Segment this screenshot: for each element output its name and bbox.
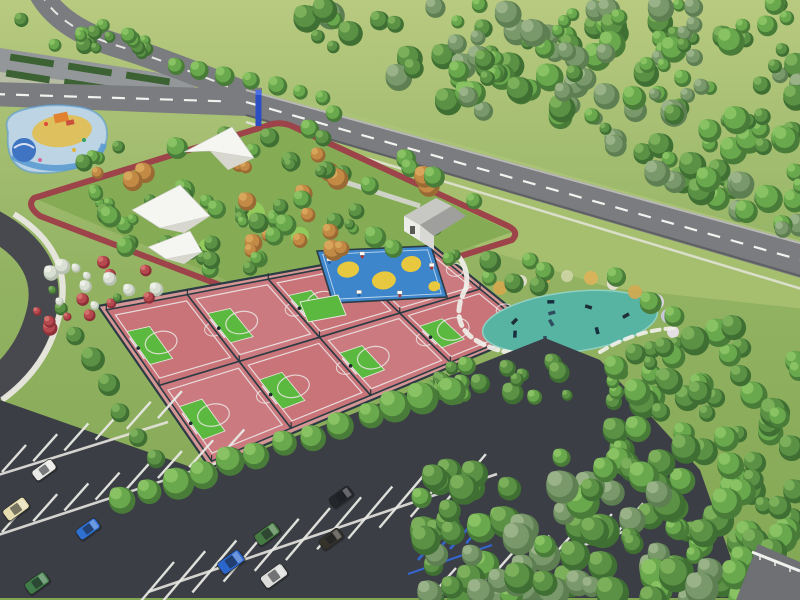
tree-highlight bbox=[238, 217, 243, 222]
tree-highlight bbox=[266, 228, 274, 236]
tree-highlight bbox=[724, 107, 736, 119]
tree-highlight bbox=[144, 292, 149, 297]
tree-highlight bbox=[665, 307, 674, 316]
park-sign-pylon bbox=[256, 90, 262, 126]
tree-highlight bbox=[276, 215, 285, 224]
tree-highlight bbox=[655, 338, 664, 347]
tree-highlight bbox=[405, 59, 414, 68]
tree-highlight bbox=[80, 280, 86, 286]
tree-highlight bbox=[658, 369, 670, 381]
tree-highlight bbox=[335, 241, 342, 248]
tree-highlight bbox=[718, 453, 730, 465]
tree-highlight bbox=[83, 272, 87, 276]
sign-pylon-body bbox=[256, 90, 262, 126]
tree-highlight bbox=[597, 577, 612, 592]
tree-highlight bbox=[385, 240, 393, 248]
tree-highlight bbox=[98, 256, 104, 262]
tree-highlight bbox=[443, 252, 449, 258]
tree-highlight bbox=[412, 526, 425, 539]
tree-highlight bbox=[387, 65, 399, 77]
tree-highlight bbox=[521, 20, 533, 32]
tree-highlight bbox=[110, 487, 122, 499]
tree-highlight bbox=[442, 577, 452, 587]
tree-highlight bbox=[123, 284, 129, 290]
tree-highlight bbox=[784, 190, 794, 200]
tree-highlight bbox=[605, 356, 616, 367]
tree-highlight bbox=[674, 423, 684, 433]
kids-backboard bbox=[429, 263, 434, 267]
tree-highlight bbox=[480, 251, 490, 261]
kids-hoop-post bbox=[328, 261, 331, 264]
basketball-hoop bbox=[429, 335, 433, 339]
tree-highlight bbox=[687, 547, 695, 555]
basketball-hoop bbox=[217, 326, 221, 330]
tree-highlight bbox=[105, 32, 110, 37]
kids-hoop-post bbox=[398, 294, 401, 297]
tree-highlight bbox=[261, 128, 270, 137]
tree-highlight bbox=[758, 16, 767, 25]
tree-highlight bbox=[99, 374, 109, 384]
tree-highlight bbox=[652, 51, 659, 58]
play-equipment-dot bbox=[82, 138, 86, 142]
tree-highlight bbox=[316, 130, 323, 137]
tree-highlight bbox=[553, 449, 561, 457]
tree-highlight bbox=[111, 404, 119, 412]
tree-highlight bbox=[77, 293, 83, 299]
tree-highlight bbox=[167, 138, 177, 148]
tree-highlight bbox=[604, 418, 616, 430]
tree-highlight bbox=[323, 224, 330, 231]
tree-highlight bbox=[558, 43, 566, 51]
tree-highlight bbox=[349, 204, 356, 211]
tree-highlight bbox=[582, 518, 595, 531]
tree-highlight bbox=[600, 123, 605, 128]
tree-highlight bbox=[101, 207, 110, 216]
tree-highlight bbox=[715, 427, 726, 438]
tree-highlight bbox=[784, 480, 795, 491]
tree-highlight bbox=[713, 489, 727, 503]
tree-highlight bbox=[285, 159, 291, 165]
tree-highlight bbox=[301, 426, 313, 438]
tree-highlight bbox=[122, 28, 129, 35]
tree-highlight bbox=[98, 19, 104, 25]
tree-highlight bbox=[662, 152, 669, 159]
tree-highlight bbox=[582, 577, 591, 586]
tree-highlight bbox=[423, 465, 435, 477]
tree-highlight bbox=[787, 164, 795, 172]
tree-highlight bbox=[113, 294, 117, 298]
tree-highlight bbox=[554, 503, 564, 513]
tree-highlight bbox=[302, 208, 308, 214]
tree-highlight bbox=[608, 268, 617, 277]
tree-highlight bbox=[205, 236, 212, 243]
tree-highlight bbox=[88, 26, 94, 32]
basketball-hoop bbox=[136, 346, 140, 350]
tree-highlight bbox=[662, 37, 674, 49]
tree-highlight bbox=[458, 357, 466, 365]
tree-highlight bbox=[243, 72, 251, 80]
tree-highlight bbox=[245, 234, 253, 242]
basketball-hoop bbox=[189, 421, 193, 425]
tree-highlight bbox=[128, 214, 133, 219]
tree-highlight bbox=[56, 298, 60, 302]
tree-highlight bbox=[608, 448, 620, 460]
tree-highlight bbox=[425, 167, 434, 176]
tree-highlight bbox=[500, 360, 508, 368]
park-aerial-rendering bbox=[0, 0, 800, 600]
tree-highlight bbox=[743, 529, 755, 541]
flowering-bush bbox=[628, 285, 642, 299]
tree-highlight bbox=[736, 19, 743, 26]
tree-highlight bbox=[790, 362, 799, 371]
tree-highlight bbox=[448, 35, 457, 44]
tree-highlight bbox=[15, 13, 21, 19]
splash-dome-pool bbox=[12, 138, 36, 162]
tree-highlight bbox=[612, 10, 619, 17]
tree-highlight bbox=[535, 536, 545, 546]
tree-highlight bbox=[641, 559, 656, 574]
tree-highlight bbox=[82, 348, 93, 359]
tree-highlight bbox=[686, 573, 701, 588]
tree-highlight bbox=[718, 29, 730, 41]
tree-highlight bbox=[678, 26, 685, 33]
tree-highlight bbox=[468, 514, 481, 527]
tree-highlight bbox=[786, 351, 796, 361]
tree-highlight bbox=[450, 475, 463, 488]
tree-highlight bbox=[769, 496, 779, 506]
tree-highlight bbox=[381, 391, 395, 405]
tree-highlight bbox=[269, 77, 278, 86]
tree-highlight bbox=[418, 581, 429, 592]
tree-highlight bbox=[439, 378, 451, 390]
tree-highlight bbox=[769, 60, 775, 66]
tree-highlight bbox=[239, 193, 247, 201]
tree-highlight bbox=[90, 187, 96, 193]
tree-highlight bbox=[784, 85, 796, 97]
tree-highlight bbox=[644, 342, 652, 350]
tree-highlight bbox=[328, 41, 334, 47]
tree-highlight bbox=[600, 31, 612, 43]
tree-highlight bbox=[776, 44, 782, 50]
tree-highlight bbox=[756, 185, 769, 198]
tree-highlight bbox=[92, 167, 97, 172]
tree-highlight bbox=[756, 138, 764, 146]
tree-highlight bbox=[328, 413, 340, 425]
tree-highlight bbox=[731, 365, 740, 374]
exercise-equipment bbox=[513, 331, 517, 338]
tree-highlight bbox=[626, 344, 635, 353]
tree-highlight bbox=[312, 30, 318, 36]
tree-highlight bbox=[294, 6, 306, 18]
flowering-bush bbox=[561, 270, 573, 282]
tree-highlight bbox=[397, 150, 406, 159]
tree-highlight bbox=[606, 135, 616, 145]
tree-highlight bbox=[274, 199, 281, 206]
tree-highlight bbox=[589, 552, 602, 565]
tree-highlight bbox=[371, 11, 380, 20]
tree-highlight bbox=[140, 265, 145, 270]
tree-highlight bbox=[471, 31, 478, 38]
tree-highlight bbox=[402, 159, 410, 167]
tree-highlight bbox=[135, 163, 144, 172]
tree-highlight bbox=[652, 403, 660, 411]
tree-highlight bbox=[775, 127, 787, 139]
tree-highlight bbox=[626, 416, 638, 428]
tree-highlight bbox=[641, 292, 651, 302]
tree-highlight bbox=[140, 36, 145, 41]
tree-highlight bbox=[770, 408, 779, 417]
tree-highlight bbox=[55, 259, 62, 266]
tree-highlight bbox=[49, 286, 53, 290]
kids-hoop-post bbox=[430, 267, 433, 270]
basketball-hoop bbox=[349, 364, 353, 368]
tree-highlight bbox=[436, 89, 448, 101]
tree-highlight bbox=[148, 450, 156, 458]
tree-highlight bbox=[104, 272, 110, 278]
flowering-bush bbox=[584, 271, 598, 285]
tree-highlight bbox=[293, 234, 300, 241]
tree-highlight bbox=[523, 253, 530, 260]
tree-highlight bbox=[508, 77, 520, 89]
tree-highlight bbox=[756, 497, 764, 505]
tree-highlight bbox=[785, 53, 797, 65]
play-equipment-dot bbox=[38, 158, 42, 162]
tree-highlight bbox=[398, 46, 410, 58]
sign-pylon-cap bbox=[256, 90, 262, 95]
tree-highlight bbox=[208, 201, 216, 209]
tree-highlight bbox=[698, 558, 709, 569]
tree-highlight bbox=[481, 71, 488, 78]
tree-highlight bbox=[630, 462, 644, 476]
tree-highlight bbox=[150, 283, 156, 289]
tree-highlight bbox=[327, 106, 334, 113]
tree-highlight bbox=[113, 141, 119, 147]
kids-backboard bbox=[360, 252, 365, 256]
tree-highlight bbox=[731, 547, 743, 559]
tree-highlight bbox=[273, 431, 284, 442]
tree-highlight bbox=[585, 108, 592, 115]
tree-highlight bbox=[623, 87, 634, 98]
tree-highlight bbox=[164, 468, 178, 482]
tree-highlight bbox=[415, 166, 425, 176]
tree-highlight bbox=[475, 20, 483, 28]
tree-highlight bbox=[91, 301, 95, 305]
tree-highlight bbox=[614, 441, 622, 449]
tree-highlight bbox=[471, 374, 480, 383]
tree-highlight bbox=[76, 155, 84, 163]
tree-highlight bbox=[84, 310, 89, 315]
tree-highlight bbox=[168, 58, 176, 66]
tree-highlight bbox=[388, 16, 396, 24]
tree-highlight bbox=[722, 316, 733, 327]
tree-highlight bbox=[76, 30, 81, 35]
tree-highlight bbox=[625, 379, 637, 391]
tree-highlight bbox=[476, 50, 485, 59]
tree-highlight bbox=[360, 403, 371, 414]
tree-highlight bbox=[64, 313, 68, 317]
tree-highlight bbox=[365, 227, 375, 237]
tree-highlight bbox=[117, 238, 126, 247]
tree-highlight bbox=[301, 120, 309, 128]
tree-highlight bbox=[681, 88, 688, 95]
tree-highlight bbox=[769, 524, 782, 537]
tree-highlight bbox=[675, 70, 683, 78]
tree-highlight bbox=[251, 252, 257, 258]
tree-highlight bbox=[649, 89, 654, 94]
tree-highlight bbox=[620, 508, 632, 520]
tree-highlight bbox=[689, 381, 700, 392]
tree-highlight bbox=[647, 481, 659, 493]
tree-highlight bbox=[492, 507, 506, 521]
tree-highlight bbox=[545, 354, 553, 362]
tree-highlight bbox=[316, 91, 323, 98]
tree-highlight bbox=[361, 177, 369, 185]
tree-highlight bbox=[311, 148, 318, 155]
tree-highlight bbox=[555, 83, 563, 91]
tree-highlight bbox=[33, 307, 37, 311]
tree-highlight bbox=[499, 477, 510, 488]
scene-svg bbox=[0, 0, 800, 600]
tree-highlight bbox=[649, 134, 660, 145]
exercise-equipment bbox=[547, 300, 554, 304]
tree-highlight bbox=[446, 362, 452, 368]
tree-highlight bbox=[467, 194, 474, 201]
tree-highlight bbox=[503, 383, 513, 393]
tree-highlight bbox=[505, 563, 519, 577]
tree-highlight bbox=[200, 195, 206, 201]
tree-highlight bbox=[144, 194, 149, 199]
tree-highlight bbox=[44, 266, 51, 273]
tree-highlight bbox=[753, 77, 761, 85]
tree-highlight bbox=[236, 212, 242, 218]
tree-highlight bbox=[567, 65, 575, 73]
tree-highlight bbox=[697, 168, 708, 179]
tree-highlight bbox=[496, 1, 508, 13]
tree-highlight bbox=[130, 429, 138, 437]
tree-highlight bbox=[553, 25, 559, 31]
tree-highlight bbox=[442, 522, 453, 533]
tree-highlight bbox=[489, 569, 500, 580]
tree-highlight bbox=[744, 470, 753, 479]
tree-highlight bbox=[687, 17, 694, 24]
tree-highlight bbox=[245, 244, 251, 250]
tree-highlight bbox=[745, 452, 755, 462]
tree-highlight bbox=[505, 274, 514, 283]
tree-highlight bbox=[463, 545, 472, 554]
tree-highlight bbox=[72, 264, 76, 268]
tree-highlight bbox=[408, 383, 422, 397]
building-door bbox=[410, 226, 415, 234]
tree-highlight bbox=[91, 43, 96, 48]
tree-highlight bbox=[449, 61, 458, 70]
tree-highlight bbox=[49, 39, 55, 45]
tree-highlight bbox=[699, 120, 709, 130]
tree-highlight bbox=[268, 213, 274, 219]
tree-highlight bbox=[203, 252, 211, 260]
tree-highlight bbox=[658, 59, 664, 65]
tree-highlight bbox=[328, 213, 336, 221]
tree-highlight bbox=[649, 450, 661, 462]
tree-highlight bbox=[249, 213, 258, 222]
tree-highlight bbox=[216, 67, 225, 76]
tree-highlight bbox=[217, 447, 230, 460]
tree-highlight bbox=[672, 435, 685, 448]
tree-highlight bbox=[562, 390, 567, 395]
tree-highlight bbox=[722, 560, 735, 573]
tree-highlight bbox=[468, 579, 480, 591]
play-equipment-dot bbox=[72, 148, 76, 152]
tree-highlight bbox=[594, 458, 605, 469]
tree-highlight bbox=[432, 44, 443, 55]
tree-highlight bbox=[731, 172, 742, 183]
tree-highlight bbox=[339, 22, 350, 33]
tree-highlight bbox=[721, 138, 733, 150]
tree-highlight bbox=[644, 357, 650, 363]
tree-highlight bbox=[736, 201, 746, 211]
tree-highlight bbox=[680, 153, 692, 165]
tree-highlight bbox=[668, 27, 675, 34]
tree-highlight bbox=[104, 198, 109, 203]
tree-highlight bbox=[316, 166, 321, 171]
tree-highlight bbox=[107, 299, 111, 303]
tree-highlight bbox=[324, 240, 333, 249]
tree-highlight bbox=[457, 565, 470, 578]
tree-highlight bbox=[440, 500, 450, 510]
tree-highlight bbox=[528, 390, 535, 397]
kids-hoop-post bbox=[358, 294, 361, 297]
tree-highlight bbox=[537, 64, 549, 76]
tree-highlight bbox=[536, 262, 544, 270]
kids-backboard bbox=[357, 290, 362, 294]
tree-highlight bbox=[780, 436, 791, 447]
tree-highlight bbox=[700, 406, 707, 413]
tree-highlight bbox=[653, 31, 661, 39]
tree-highlight bbox=[694, 79, 701, 86]
tree-highlight bbox=[462, 461, 474, 473]
tree-highlight bbox=[755, 109, 762, 116]
tree-highlight bbox=[547, 471, 562, 486]
tree-highlight bbox=[678, 39, 684, 45]
tree-highlight bbox=[665, 105, 674, 114]
tree-highlight bbox=[691, 520, 703, 532]
tree-highlight bbox=[138, 480, 149, 491]
tree-highlight bbox=[294, 191, 302, 199]
tree-highlight bbox=[452, 16, 458, 22]
tree-highlight bbox=[595, 84, 607, 96]
tree-highlight bbox=[44, 316, 49, 321]
basketball-hoop bbox=[269, 393, 273, 397]
tree-highlight bbox=[530, 277, 538, 285]
tree-highlight bbox=[294, 85, 300, 91]
tree-highlight bbox=[660, 559, 675, 574]
tree-highlight bbox=[559, 15, 565, 21]
tree-highlight bbox=[624, 534, 633, 543]
kids-backboard bbox=[397, 291, 402, 295]
tree-highlight bbox=[567, 8, 573, 14]
tree-highlight bbox=[706, 319, 719, 332]
tree-highlight bbox=[533, 571, 544, 582]
tree-highlight bbox=[681, 327, 694, 340]
tree-highlight bbox=[582, 479, 592, 489]
play-equipment-dot bbox=[44, 122, 48, 126]
tree-highlight bbox=[244, 262, 250, 268]
tree-highlight bbox=[586, 0, 596, 10]
tree-highlight bbox=[459, 87, 468, 96]
tree-highlight bbox=[567, 570, 579, 582]
tree-highlight bbox=[640, 57, 647, 64]
tree-highlight bbox=[550, 362, 559, 371]
tree-highlight bbox=[412, 488, 421, 497]
